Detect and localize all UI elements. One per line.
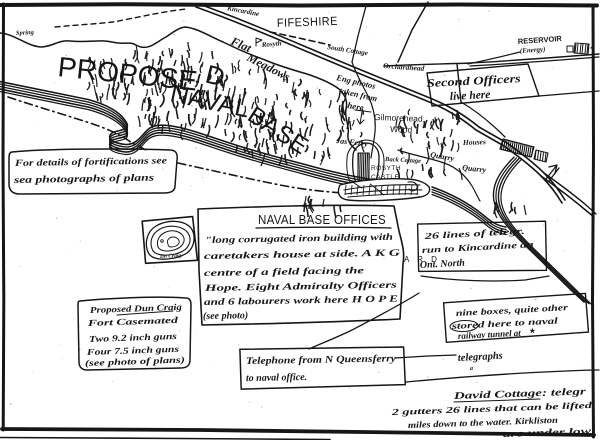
- svg-text:(see photo): (see photo): [203, 310, 248, 322]
- svg-text:telegraphs: telegraphs: [458, 351, 503, 364]
- svg-text:*: *: [530, 326, 535, 340]
- svg-text:Houses: Houses: [462, 137, 486, 147]
- svg-text:a: a: [470, 366, 473, 372]
- svg-text:Wood: Wood: [390, 124, 413, 135]
- svg-text:NAVAL BASE OFFICES: NAVAL BASE OFFICES: [258, 213, 386, 227]
- svg-text:Dn Craig: Dn Craig: [159, 253, 182, 260]
- svg-text:ROSYTH: ROSYTH: [371, 165, 401, 172]
- svg-text:to naval office.: to naval office.: [246, 372, 307, 384]
- svg-text:Gilmorehead: Gilmorehead: [374, 112, 423, 124]
- svg-text:Spring: Spring: [16, 29, 35, 37]
- svg-text:FIFESHIRE: FIFESHIRE: [277, 14, 338, 30]
- svg-text:live here: live here: [450, 89, 491, 103]
